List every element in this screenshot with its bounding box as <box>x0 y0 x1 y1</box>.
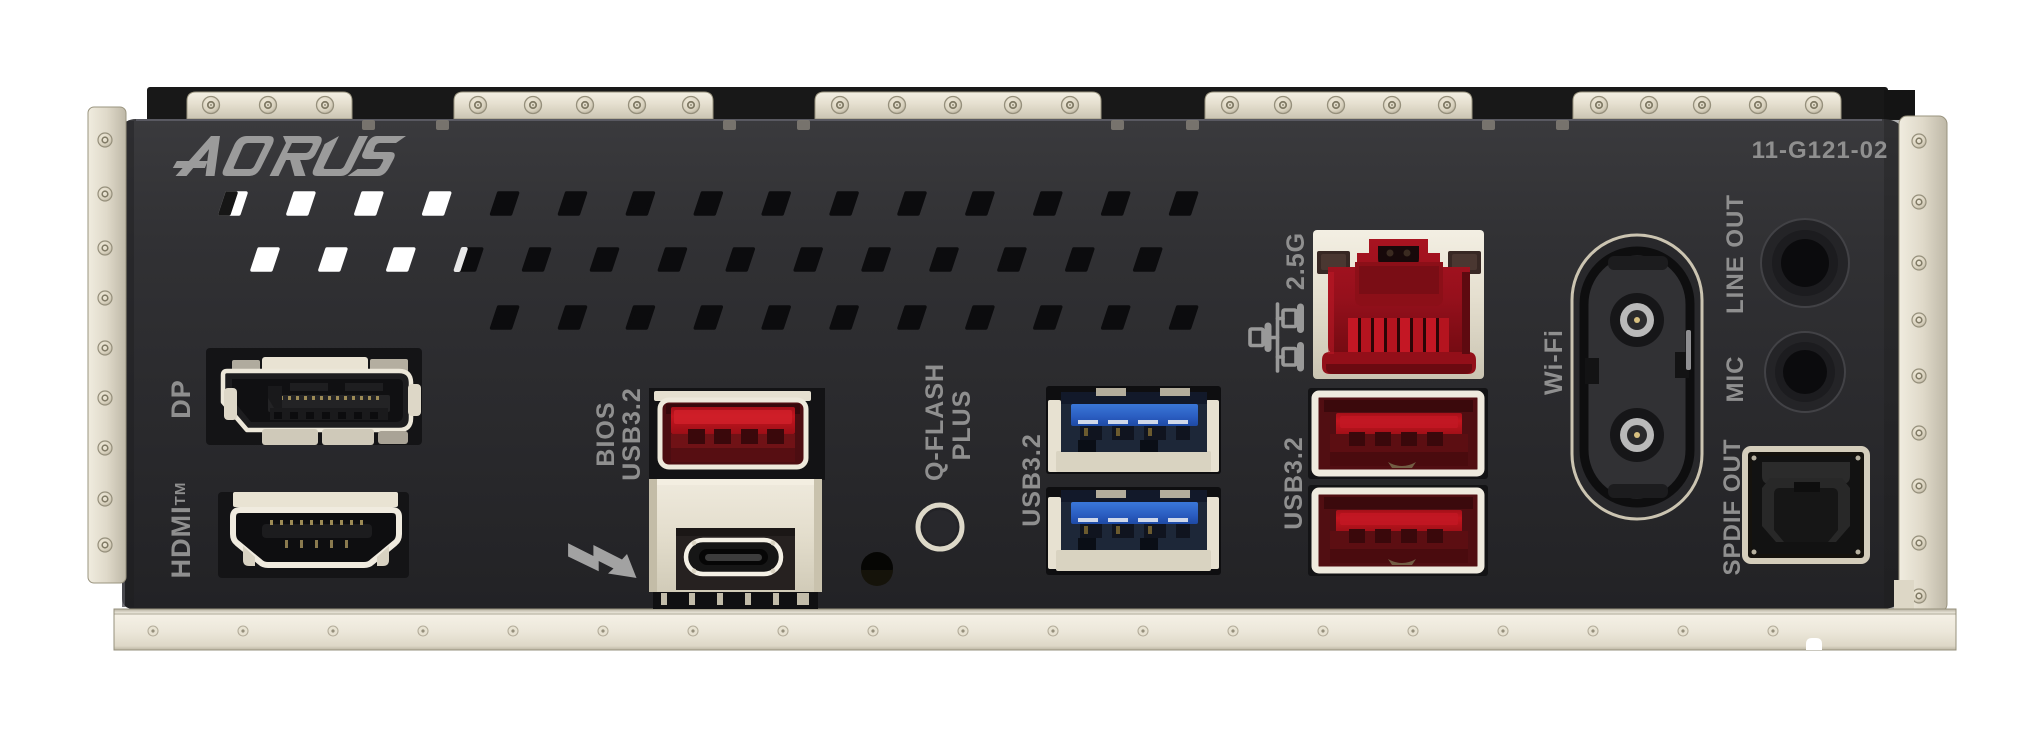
svg-text:Wi-Fi: Wi-Fi <box>1540 329 1568 395</box>
svg-text:DP: DP <box>166 379 196 419</box>
svg-text:MIC: MIC <box>1722 356 1749 403</box>
svg-text:PLUS: PLUS <box>948 390 976 461</box>
svg-text:SPDIF OUT: SPDIF OUT <box>1719 438 1746 575</box>
svg-text:BIOS: BIOS <box>592 401 620 466</box>
svg-text:2.5G: 2.5G <box>1282 232 1310 290</box>
svg-text:USB3.2: USB3.2 <box>1018 433 1046 527</box>
svg-text:USB3.2: USB3.2 <box>618 387 646 481</box>
svg-text:Q-FLASH: Q-FLASH <box>921 363 949 481</box>
svg-text:11-G121-02: 11-G121-02 <box>1752 137 1889 164</box>
svg-text:LINE OUT: LINE OUT <box>1722 194 1749 314</box>
svg-text:USB3.2: USB3.2 <box>1280 436 1308 530</box>
